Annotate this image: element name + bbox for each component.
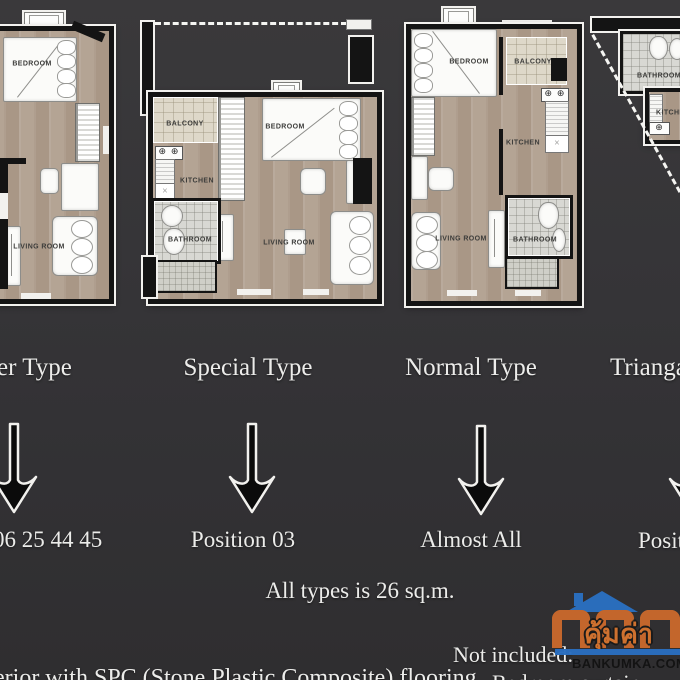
room-label: LIVING ROOM — [13, 244, 64, 251]
position-special: Position 03 — [191, 527, 295, 553]
floorplan-flyer: BEDROOM LIVING ROOM — [0, 0, 680, 680]
room-label: BALCONY — [166, 121, 203, 128]
shower-floor — [505, 257, 559, 289]
all-types-note: All types is 26 sq.m. — [265, 578, 454, 604]
boundary-dashed-line — [155, 22, 347, 25]
down-arrow-icon — [664, 422, 680, 518]
side-cabinet — [411, 156, 428, 200]
shower-floor — [155, 260, 217, 293]
corner-type-plan: BEDROOM LIVING ROOM — [0, 10, 106, 300]
room-label: KITCHEN — [656, 110, 680, 117]
column-title-triangle: Trianga — [610, 354, 680, 382]
room-label: LIVING ROOM — [435, 236, 486, 243]
balcony-unit — [551, 58, 567, 81]
toilet — [538, 202, 559, 229]
tv-cabinet — [6, 226, 21, 286]
tv-cabinet — [488, 210, 505, 268]
room-label: KITCHEN — [180, 178, 214, 185]
flooring-note: erior with SPC (Stone Plastic Composite)… — [0, 665, 477, 680]
column-title-normal: Normal Type — [405, 354, 537, 382]
stove: ⊕ ⊕ — [649, 122, 670, 135]
room-label: BATHROOM — [637, 73, 680, 80]
room-label: BEDROOM — [449, 59, 488, 66]
kitchen-counter: × — [155, 159, 175, 201]
sink — [669, 38, 680, 60]
logo-domain-text: BANKUMKA.COM — [572, 656, 680, 671]
side-cabinet — [61, 163, 99, 211]
chair — [40, 168, 59, 194]
position-normal: Almost All — [420, 527, 522, 553]
top-wall — [592, 18, 680, 31]
room-label: BEDROOM — [265, 124, 304, 131]
wardrobe — [75, 103, 100, 162]
bathroom-floor: BATHROOM — [505, 195, 573, 259]
room-label: KITCHEN — [506, 140, 540, 147]
bathroom-floor: BATHROOM — [151, 198, 221, 264]
room-label: BATHROOM — [513, 237, 557, 244]
special-type-plan: BALCONY ⊕ ⊕ × KITCHEN BEDROOM — [140, 18, 376, 300]
sink — [161, 205, 183, 227]
stove: ⊕ ⊕ — [155, 146, 183, 160]
column-title-corner: er Type — [0, 354, 72, 382]
bankumka-watermark: คุ้มค่า BANKUMKA.COM — [552, 586, 680, 678]
room-label: BEDROOM — [12, 61, 51, 68]
logo-underline — [555, 649, 680, 655]
down-arrow-icon — [224, 420, 280, 516]
room-label: LIVING ROOM — [263, 240, 314, 247]
chair — [300, 168, 326, 195]
position-triangle: Positi — [638, 528, 680, 554]
tv-panel — [353, 158, 372, 204]
column-title-special: Special Type — [183, 354, 312, 382]
entry-step — [143, 257, 156, 297]
room-label: BATHROOM — [168, 237, 212, 244]
wardrobe — [218, 97, 245, 201]
normal-type-plan: BEDROOM BALCONY ⊕ ⊕ × KITCHEN LIVING ROO… — [402, 6, 578, 298]
chair — [428, 167, 454, 191]
triangle-type-plan: BATHROOM ⊕ ⊕ KITCHEN — [588, 14, 680, 224]
down-arrow-icon — [453, 422, 509, 518]
position-corner: 06 25 44 45 — [0, 527, 102, 553]
room-label: BALCONY — [514, 59, 551, 66]
bathroom-floor: BATHROOM — [620, 31, 680, 94]
down-arrow-icon — [0, 420, 42, 516]
wardrobe — [411, 97, 435, 156]
kitchen-counter: × — [545, 101, 569, 153]
toilet — [649, 36, 668, 60]
stove: ⊕ ⊕ — [541, 88, 569, 102]
